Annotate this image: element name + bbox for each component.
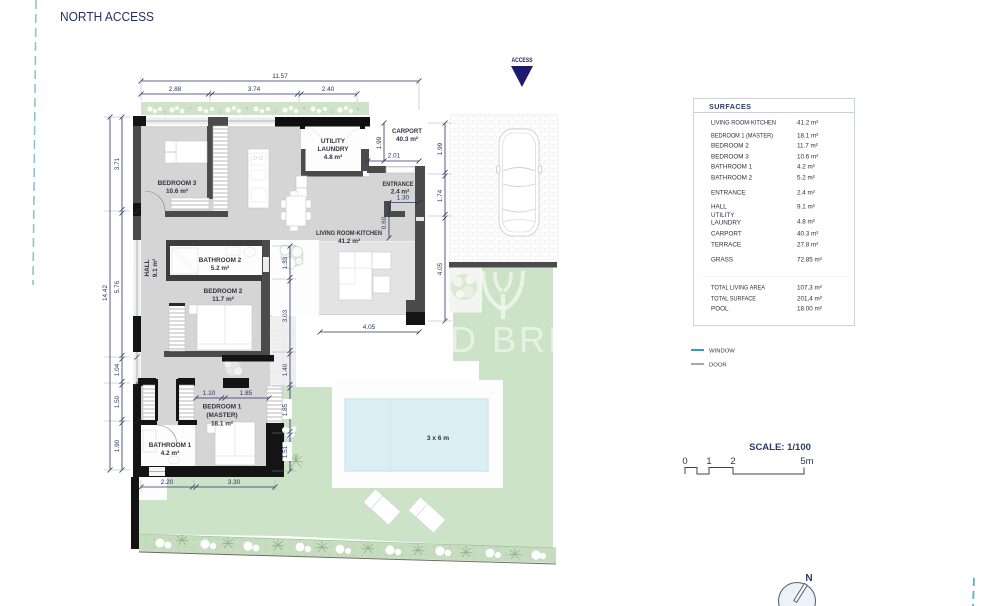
svg-text:10.6 m²: 10.6 m² — [797, 154, 818, 161]
svg-text:1.04: 1.04 — [114, 363, 121, 376]
svg-text:3 x 6 m: 3 x 6 m — [427, 435, 449, 442]
svg-text:18.1 m²: 18.1 m² — [797, 133, 818, 140]
svg-text:1.99: 1.99 — [437, 142, 444, 155]
svg-text:BEDROOM 2: BEDROOM 2 — [711, 143, 749, 150]
svg-text:WINDOW: WINDOW — [709, 349, 735, 355]
svg-text:(MASTER): (MASTER) — [206, 412, 237, 419]
svg-text:11.7 m²: 11.7 m² — [212, 296, 234, 303]
svg-text:UTILITY: UTILITY — [711, 212, 735, 219]
svg-text:5.2 m²: 5.2 m² — [797, 175, 815, 182]
svg-text:ENTRANCE: ENTRANCE — [383, 181, 415, 188]
svg-text:CARPORT: CARPORT — [392, 128, 422, 135]
svg-text:N: N — [805, 573, 812, 584]
svg-text:1.50: 1.50 — [114, 395, 121, 408]
svg-text:1.74: 1.74 — [437, 189, 444, 202]
svg-text:5.2 m²: 5.2 m² — [211, 265, 229, 272]
svg-text:1.90: 1.90 — [114, 439, 121, 452]
svg-text:0.60: 0.60 — [381, 216, 388, 229]
svg-text:1.30: 1.30 — [397, 195, 410, 202]
svg-text:4.8 m²: 4.8 m² — [797, 219, 815, 226]
svg-text:HALL: HALL — [144, 259, 151, 276]
svg-text:1.10: 1.10 — [203, 390, 216, 397]
svg-text:BEDROOM 2: BEDROOM 2 — [204, 288, 243, 295]
svg-text:1.51: 1.51 — [282, 445, 289, 458]
svg-text:UTILITY: UTILITY — [321, 138, 346, 145]
svg-text:1.85: 1.85 — [282, 403, 289, 416]
svg-text:1.85: 1.85 — [240, 390, 253, 397]
svg-text:HALL: HALL — [711, 204, 727, 211]
svg-text:72.85 m²: 72.85 m² — [797, 257, 822, 264]
svg-text:41.2 m²: 41.2 m² — [338, 238, 360, 245]
svg-text:4.05: 4.05 — [437, 262, 444, 275]
svg-text:9.1 m²: 9.1 m² — [797, 204, 815, 211]
svg-text:107.3 m²: 107.3 m² — [797, 285, 822, 292]
svg-text:3.74: 3.74 — [248, 86, 261, 93]
svg-text:40.3 m²: 40.3 m² — [797, 231, 818, 238]
svg-text:ENTRANCE: ENTRANCE — [711, 190, 746, 197]
svg-text:18.00 m²: 18.00 m² — [797, 306, 822, 313]
svg-text:BEDROOM 1: BEDROOM 1 — [203, 404, 242, 411]
svg-text:BATHROOM 1: BATHROOM 1 — [149, 442, 192, 449]
svg-text:40.3 m²: 40.3 m² — [396, 136, 418, 143]
svg-text:BATHROOM 1: BATHROOM 1 — [711, 164, 753, 171]
svg-text:TOTAL LIVING AREA: TOTAL LIVING AREA — [711, 285, 766, 292]
svg-text:POOL: POOL — [711, 306, 729, 313]
svg-text:3.03: 3.03 — [282, 309, 289, 322]
svg-text:5m: 5m — [800, 456, 813, 467]
svg-text:LIVING ROOM-KITCHEN: LIVING ROOM-KITCHEN — [711, 120, 776, 127]
svg-text:1.33: 1.33 — [282, 256, 289, 269]
svg-text:D BRI: D BRI — [450, 319, 561, 360]
svg-text:18.1 m²: 18.1 m² — [211, 421, 233, 428]
svg-text:4.05: 4.05 — [363, 324, 376, 331]
svg-text:11.57: 11.57 — [272, 73, 288, 80]
svg-text:ACCESS: ACCESS — [512, 57, 534, 64]
svg-text:LAUNDRY: LAUNDRY — [711, 220, 742, 227]
svg-text:41.2 m²: 41.2 m² — [797, 120, 818, 127]
svg-text:BEDROOM 3: BEDROOM 3 — [711, 154, 749, 161]
svg-text:10.6 m²: 10.6 m² — [166, 188, 188, 195]
svg-text:BEDROOM 3: BEDROOM 3 — [158, 180, 197, 187]
svg-text:SURFACES: SURFACES — [709, 102, 751, 111]
svg-text:4.2 m²: 4.2 m² — [161, 450, 179, 457]
svg-text:DOOR: DOOR — [709, 363, 727, 369]
svg-text:201,4 m²: 201,4 m² — [797, 296, 822, 303]
svg-text:3.30: 3.30 — [228, 479, 241, 486]
svg-text:1.40: 1.40 — [282, 363, 289, 376]
svg-text:3.71: 3.71 — [114, 157, 121, 170]
svg-text:BEDROOM 1 (MASTER): BEDROOM 1 (MASTER) — [711, 133, 773, 140]
svg-text:2.20: 2.20 — [161, 479, 174, 486]
svg-text:9.1 m²: 9.1 m² — [152, 259, 159, 277]
svg-text:BATHROOM 2: BATHROOM 2 — [199, 257, 242, 264]
svg-text:TOTAL SURFACE: TOTAL SURFACE — [711, 296, 756, 303]
svg-text:2.4 m²: 2.4 m² — [797, 190, 815, 197]
svg-text:2: 2 — [730, 456, 735, 467]
svg-text:5.76: 5.76 — [114, 280, 121, 293]
svg-text:4.2 m²: 4.2 m² — [797, 164, 815, 171]
svg-text:BATHROOM 2: BATHROOM 2 — [711, 175, 753, 182]
svg-text:TERRACE: TERRACE — [711, 242, 741, 249]
svg-text:1.99: 1.99 — [376, 136, 383, 149]
svg-text:1: 1 — [706, 456, 711, 467]
svg-text:CARPORT: CARPORT — [711, 231, 742, 238]
svg-text:0: 0 — [682, 456, 687, 467]
svg-text:LIVING ROOM-KITCHEN: LIVING ROOM-KITCHEN — [316, 230, 382, 237]
svg-text:14.42: 14.42 — [102, 285, 109, 301]
svg-text:NORTH ACCESS: NORTH ACCESS — [60, 9, 154, 24]
svg-text:11.7 m²: 11.7 m² — [797, 143, 818, 150]
svg-text:SCALE: 1/100: SCALE: 1/100 — [749, 442, 811, 453]
svg-text:2.01: 2.01 — [388, 153, 401, 160]
svg-text:27.8 m²: 27.8 m² — [797, 242, 818, 249]
svg-text:LAUNDRY: LAUNDRY — [317, 146, 349, 153]
svg-text:GRASS: GRASS — [711, 257, 733, 264]
svg-text:2.40: 2.40 — [322, 86, 335, 93]
svg-text:4.8 m²: 4.8 m² — [324, 154, 342, 161]
svg-text:2.88: 2.88 — [169, 86, 182, 93]
